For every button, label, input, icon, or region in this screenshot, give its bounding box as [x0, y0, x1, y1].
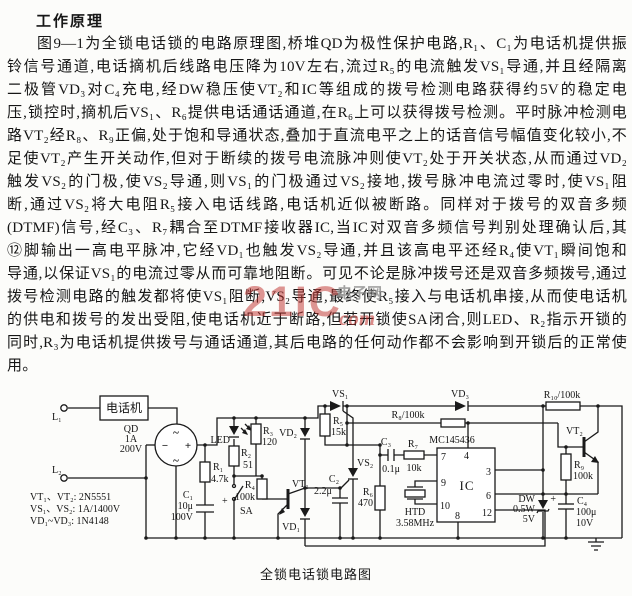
paragraph-line: 图9—1为全锁电话锁的电路原理图,桥堆QD为极性保护电路,R₁、C₁为电话机提供…	[7, 33, 627, 56]
label-r3: R₃	[263, 426, 273, 437]
paragraph-line: 路VT₂经R₈、R₉正偏,处于饱和导通状态,叠加于直流电平之上的话音信号幅值变化…	[7, 125, 627, 148]
label-r9: R₉	[574, 460, 585, 471]
label-c2: C₂	[329, 474, 339, 485]
ic-pin-3: 3	[486, 467, 491, 478]
label-c1-plus: +	[222, 496, 228, 507]
resistor-r2	[229, 446, 239, 466]
label-vd2: VD₂	[279, 428, 297, 439]
capacitor-c2	[332, 498, 348, 503]
paragraph-line: ⑫脚输出一高电平脉冲,它经VD₁也触发VS₂导通,并且该高电平还经R₄使VT₁瞬…	[7, 240, 627, 263]
svg-text:~: ~	[173, 455, 179, 467]
label-ic-part-number: MC145436	[429, 435, 475, 446]
parts-list-line: VS₁、VS₂: 1A/1400V	[30, 504, 121, 515]
label-c4: C₄	[577, 496, 588, 507]
paragraph-line: 拨号检测电路的触发都将使VS₁阻断,VS₂导通,最终使R₅接入与电话机串接,从而…	[7, 286, 627, 309]
label-c2-value: 2.2μ	[314, 486, 332, 497]
thyristor-vs2	[348, 468, 358, 479]
label-r3-value: 120	[262, 437, 277, 448]
label-crystal: HTD	[405, 507, 426, 518]
led-indicator	[229, 424, 252, 437]
capacitor-c1	[196, 505, 214, 512]
label-r9-value: 100k	[573, 471, 593, 482]
paragraph-line: 导通,以保证VS₁的电流过零从而可靠地阻断。可见不论是脉冲拨号还是双音多频拨号,…	[7, 263, 627, 286]
label-led: LED	[211, 435, 230, 446]
label-r10: R₁₀/100k	[544, 390, 580, 401]
paragraph-line: 的供电和拨号的发出受阻,使电话机近于断路,但若开锁使SA闭合,则LED、R₂指示…	[7, 309, 627, 332]
resistor-r6	[375, 486, 385, 510]
label-c3-value: 0.1μ	[382, 464, 400, 475]
parts-list-line: VD₁~VD₃: 1N4148	[30, 516, 109, 527]
label-r2: R₂	[241, 448, 251, 459]
label-c1-voltage: 100V	[171, 512, 194, 523]
circuit-diagram: L₁ L₂ 电话机 ~ − + ~ QD 1A 200V LED R₂ 51 R…	[0, 388, 632, 560]
ground-icon	[588, 538, 604, 550]
resistor-r4	[257, 479, 267, 499]
parts-list-line: VT₁、VT₂: 2N5551	[30, 492, 111, 503]
bridge-rectifier-qd: ~ − + ~ QD 1A 200V	[120, 424, 197, 467]
line-terminal-l2	[61, 475, 67, 481]
diode-vd2	[300, 428, 310, 439]
label-c1: C₁	[183, 490, 193, 501]
page-title: 工作原理	[36, 10, 104, 31]
label-sa: SA	[240, 506, 254, 517]
figure-caption: 全锁电话锁电路图	[0, 564, 632, 583]
label-vs2: VS₂	[357, 458, 373, 469]
diode-vd3	[455, 401, 468, 411]
label-r1: R₁	[213, 462, 223, 473]
resistor-r10	[546, 402, 580, 410]
label-c3: C₃	[381, 437, 391, 448]
crystal-htd	[405, 487, 425, 499]
label-vt2: VT₂	[566, 426, 583, 437]
label-c4-voltage: 10V	[576, 518, 594, 529]
label-terminal-l1: L₁	[52, 412, 62, 423]
label-r5: R₅	[333, 416, 343, 427]
label-c4-value: 100μ	[576, 507, 596, 518]
ic-pin-8: 8	[455, 511, 460, 522]
scanned-book-page: { "title": "工作原理", "paragraph": { "lines…	[0, 0, 632, 596]
zener-dw	[537, 500, 549, 513]
label-r6: R₆	[363, 487, 374, 498]
resistor-r7	[404, 451, 424, 459]
line-terminal-l1	[61, 405, 67, 411]
diode-vd1	[300, 508, 310, 519]
label-vd3: VD₃	[451, 389, 469, 400]
resistor-r3	[251, 424, 261, 444]
label-r4: R₄	[245, 480, 256, 491]
label-r2-value: 51	[243, 460, 253, 471]
resistor-r5	[320, 414, 330, 436]
label-qd-voltage: 200V	[120, 444, 143, 455]
label-r8: R₈/100k	[392, 410, 425, 421]
paragraph-line: 触发VS₂的门极,使VS₂导通,则VS₁的门极通过VS₂接地,拨号脉冲电流过零时…	[7, 171, 627, 194]
svg-text:~: ~	[173, 427, 179, 439]
label-ic: IC	[460, 478, 475, 493]
label-dw-voltage: 5V	[523, 514, 536, 525]
label-r4-value: 100k	[235, 492, 255, 503]
thyristor-vs1	[330, 401, 343, 411]
ic-pin-6: 6	[486, 491, 491, 502]
label-vd1: VD₁	[282, 522, 300, 533]
label-c4-plus: +	[550, 494, 556, 505]
ic-pin-10: 10	[440, 501, 450, 512]
ic-pin-12: 12	[482, 508, 492, 519]
ic-pin-9: 9	[441, 478, 446, 489]
label-r5-value: 15k	[331, 427, 346, 438]
label-crystal-freq: 3.58MHz	[396, 518, 435, 529]
label-r7-value: 10k	[407, 463, 422, 474]
resistor-r1	[200, 462, 210, 482]
parts-list: VT₁、VT₂: 2N5551 VS₁、VS₂: 1A/1400V VD₁~VD…	[30, 492, 121, 527]
paragraph-line: (DTMF)信号,经C₃、R₇耦合至DTMF接收器IC,当IC对双音多频信号判别…	[7, 217, 627, 240]
ic-pin-4: 4	[464, 451, 469, 462]
label-r1-value: 4.7k	[211, 474, 229, 485]
label-terminal-l2: L₂	[52, 465, 62, 476]
paragraph-line: 铃信号通道,电话摘机后线路电压降为10V左右,流过R₅的电流触发VS₁导通,并且…	[7, 56, 627, 79]
paragraph-line: 用。	[7, 355, 627, 378]
paragraph-line: 二极管VD₃对C₄充电,经DW稳压使VT₂和IC等组成的拨号检测电路获得约5V的…	[7, 79, 627, 102]
label-vs1: VS₁	[332, 389, 348, 400]
svg-text:−: −	[162, 440, 168, 452]
paragraph-line: 同时,R₃为电话机提供拨号与通话通道,其后电路的任何动作都不会影响到开锁后的正常…	[7, 332, 627, 355]
label-r7: R₇	[408, 439, 418, 450]
label-r6-value: 470	[358, 498, 373, 509]
paragraph-line: 断,通过VS₂将大电阻R₅接入电话线路,电话机近似被断路。同样对于拨号的双音多频	[7, 194, 627, 217]
ic-pin-7: 7	[441, 452, 446, 463]
resistor-r9	[561, 454, 571, 480]
body-paragraph: 图9—1为全锁电话锁的电路原理图,桥堆QD为极性保护电路,R₁、C₁为电话机提供…	[7, 33, 627, 378]
paragraph-line: 足使VT₂产生开关动作,但对于断续的拨号电流脉冲则使VT₂处于开关状态,从而通过…	[7, 148, 627, 171]
paragraph-line: 压,锁控时,摘机后VS₁、R₆提供电话通话通道,在R₆上可以获得拨号检测。平时脉…	[7, 102, 627, 125]
capacitor-c4	[558, 504, 574, 509]
svg-text:+: +	[185, 440, 191, 452]
capacitor-c3	[388, 449, 394, 461]
label-c1-value: 10μ	[178, 501, 193, 512]
resistor-r8	[441, 419, 465, 427]
label-telephone: 电话机	[106, 401, 142, 415]
